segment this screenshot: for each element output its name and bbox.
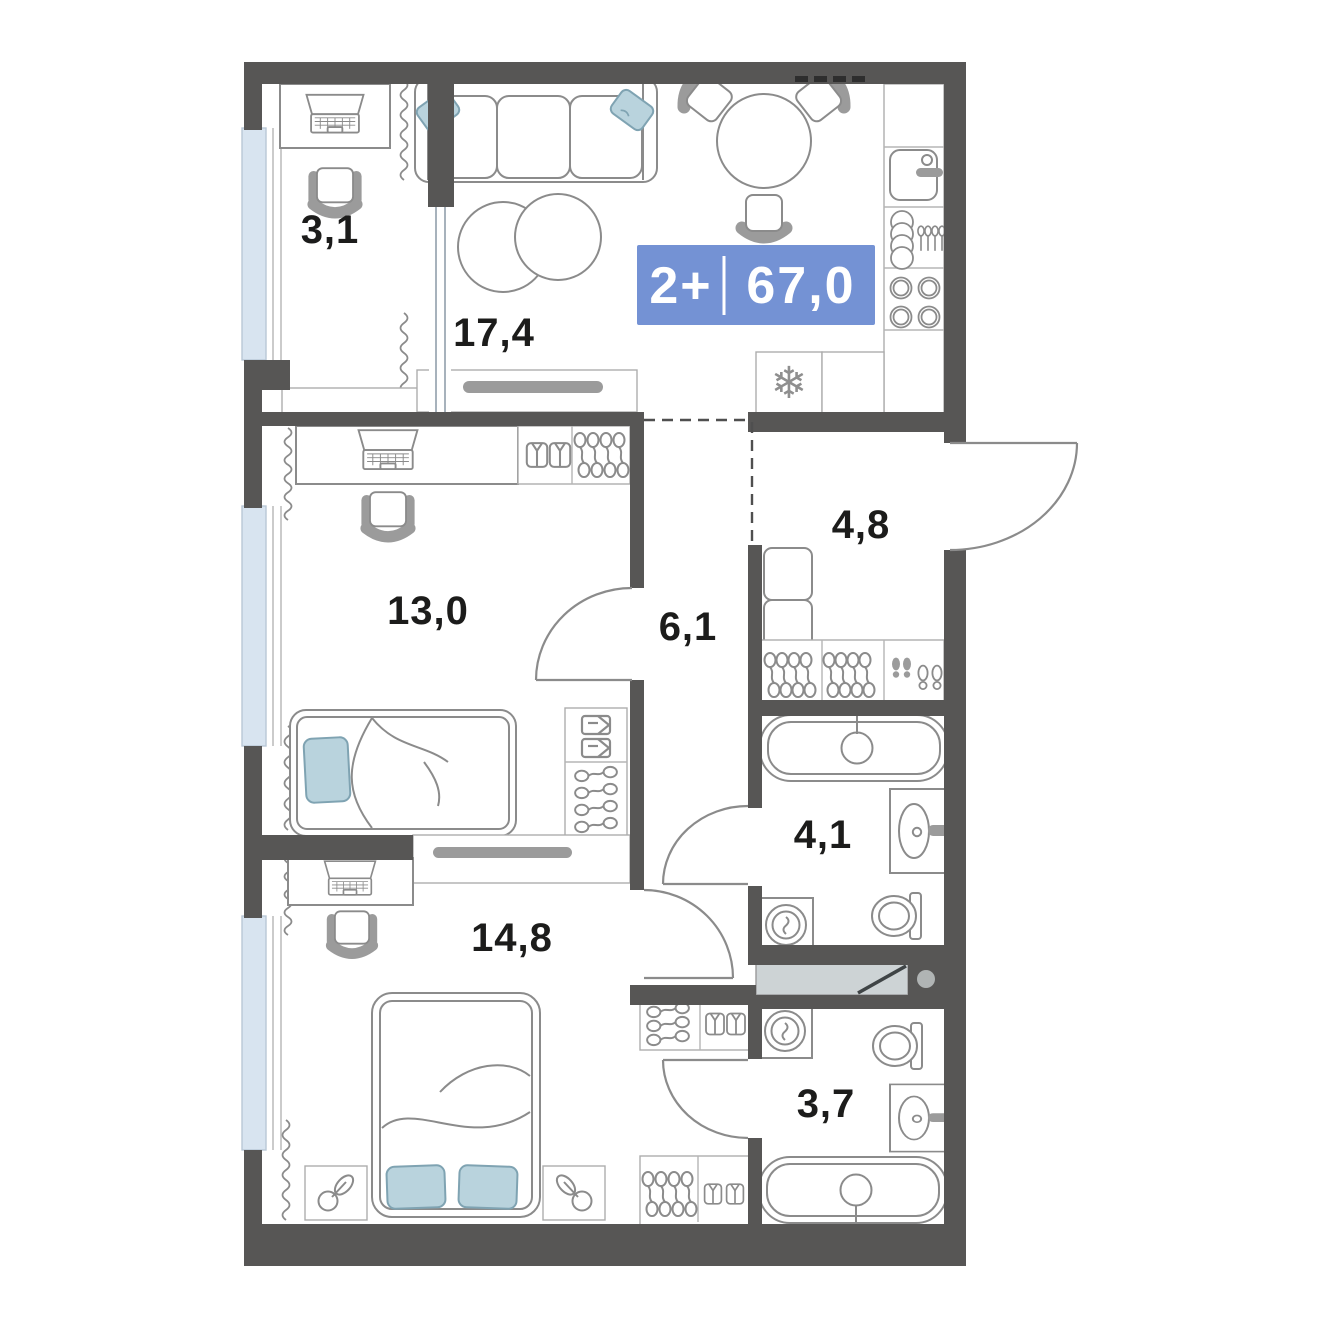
bathtub [759,1157,947,1223]
shirt-icon [705,1184,722,1204]
floor-plan-page: ❄ [0,0,1320,1320]
shirt-icon [727,1184,744,1204]
area-badge: 2+ 67,0 [637,245,875,325]
folded-clothes-icon [582,716,610,734]
bathroom-sink [890,789,950,873]
bed-pillow-icon [386,1165,445,1209]
label-bathroom2: 3,7 [797,1082,856,1126]
dining-table [717,94,811,188]
balcony-glazing [429,207,451,415]
folded-clothes-icon [582,739,610,757]
shirt-icon [550,443,570,467]
bed-pillow-icon [458,1165,517,1209]
laptop-icon [359,430,418,469]
shirt-icon [727,1014,745,1035]
snowflake-icon: ❄ [771,358,808,409]
kitchen-counter [884,84,945,415]
label-living: 17,4 [453,311,535,355]
floor-plan: ❄ [0,0,1320,1320]
entry-bench [764,548,812,652]
bedroom1-wardrobe [518,426,630,484]
badge-total-area: 67,0 [746,257,855,315]
single-bed [290,710,516,836]
shirt-icon [527,443,547,467]
label-entry: 4,8 [832,503,891,547]
toilet [872,893,921,939]
label-balcony: 3,1 [301,208,360,252]
label-bathroom1: 4,1 [794,813,853,857]
dining-chair [742,195,786,237]
balcony-bench [282,388,428,416]
entry-wardrobe [760,640,944,710]
sliding-door-icon [433,847,572,858]
label-hall: 6,1 [659,605,718,649]
laptop-icon [306,95,363,133]
cabinet [822,352,884,415]
nook-rail-top [640,998,752,1050]
double-bed [372,993,540,1217]
washing-machine [759,898,813,952]
coffee-table [515,194,601,280]
washing-machine [758,1004,812,1058]
bathroom-sink [890,1084,950,1151]
entrance-door [950,443,1077,550]
toilet [873,1023,922,1069]
sliding-wardrobe [413,835,630,883]
kitchen-base: ❄ [756,352,884,415]
utility-shaft [756,961,944,997]
nightstand-right [543,1166,605,1220]
bed-pillow-icon [303,737,350,803]
kitchen-sink-icon [890,150,943,200]
nightstand-left [305,1166,367,1220]
bedroom1-shelf [565,708,627,836]
shirt-icon [706,1014,724,1035]
badge-rooms-count: 2+ [649,257,712,315]
label-bedroom1: 13,0 [387,589,469,633]
tv-icon [463,381,603,393]
shaft-duct-icon [917,970,935,988]
label-bedroom2: 14,8 [471,916,553,960]
bathtub [760,715,948,781]
shoes-icon [903,658,911,678]
shoes-icon [892,658,900,678]
laptop-icon [325,861,376,895]
